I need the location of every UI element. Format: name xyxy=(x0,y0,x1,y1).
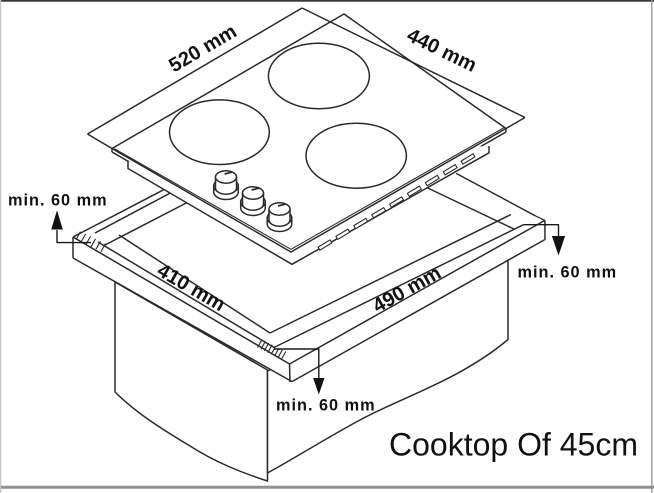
svg-text:min. 60 mm: min. 60 mm xyxy=(276,397,376,415)
svg-text:min. 60 mm: min. 60 mm xyxy=(518,264,618,282)
svg-text:min. 60 mm: min. 60 mm xyxy=(8,192,108,210)
svg-text:Cooktop Of 45cm: Cooktop Of 45cm xyxy=(389,427,638,463)
